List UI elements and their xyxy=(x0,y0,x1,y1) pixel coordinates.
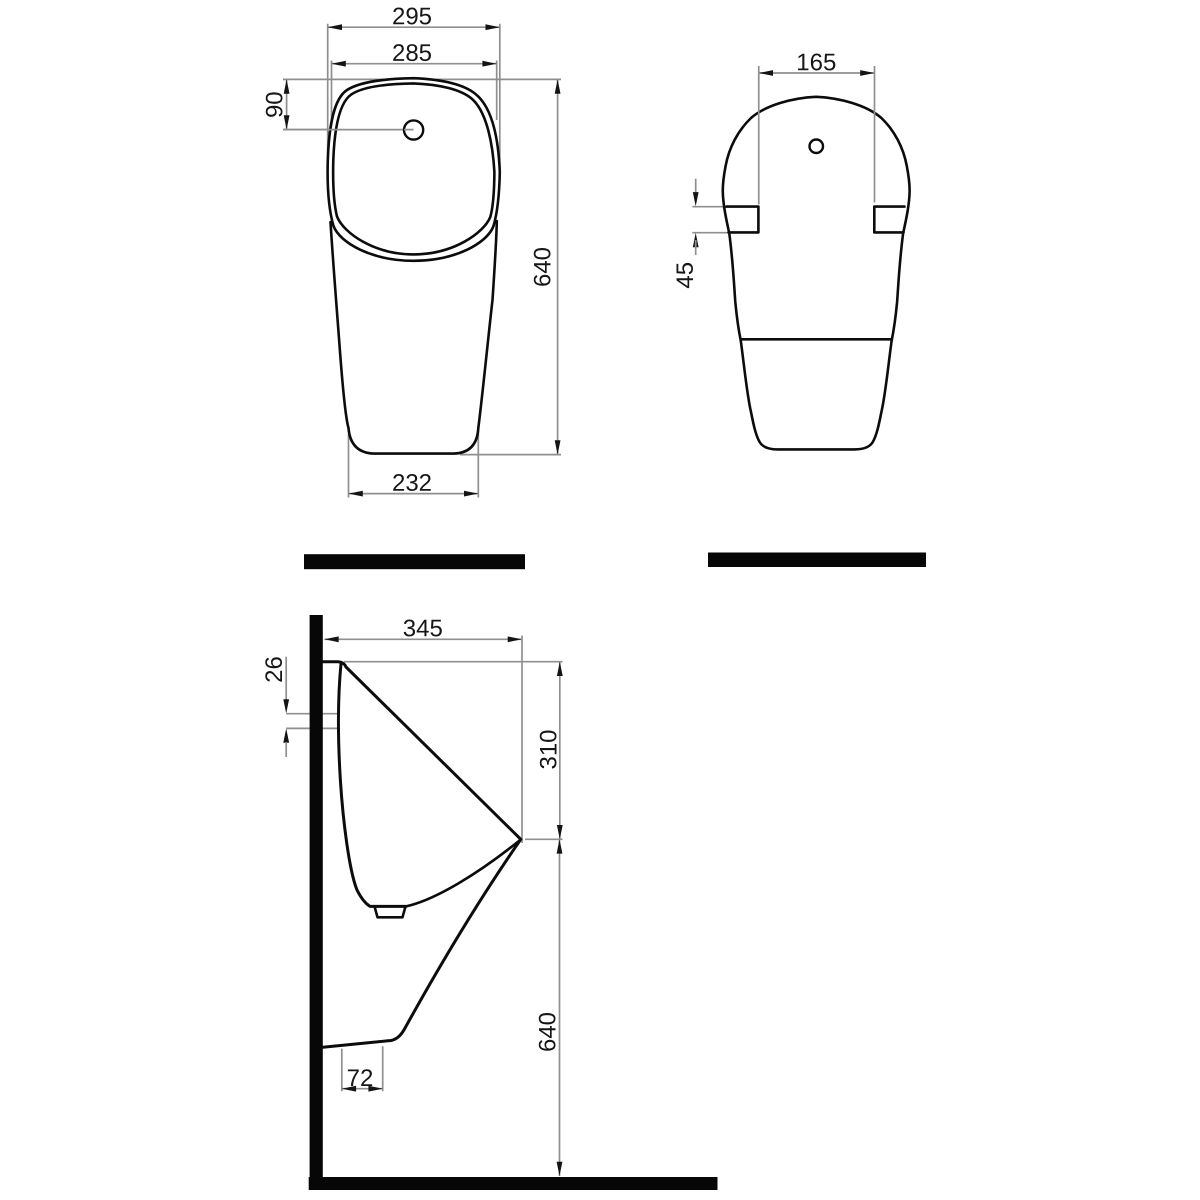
svg-text:45: 45 xyxy=(672,262,699,289)
svg-text:165: 165 xyxy=(796,49,836,76)
svg-text:310: 310 xyxy=(535,729,562,769)
svg-text:90: 90 xyxy=(261,91,288,118)
svg-text:345: 345 xyxy=(403,615,443,642)
svg-text:72: 72 xyxy=(347,1065,374,1092)
svg-text:232: 232 xyxy=(392,470,432,497)
svg-text:285: 285 xyxy=(392,40,432,67)
svg-text:640: 640 xyxy=(534,1012,561,1052)
svg-text:295: 295 xyxy=(392,3,432,30)
svg-text:26: 26 xyxy=(261,656,288,683)
svg-text:640: 640 xyxy=(530,247,557,287)
